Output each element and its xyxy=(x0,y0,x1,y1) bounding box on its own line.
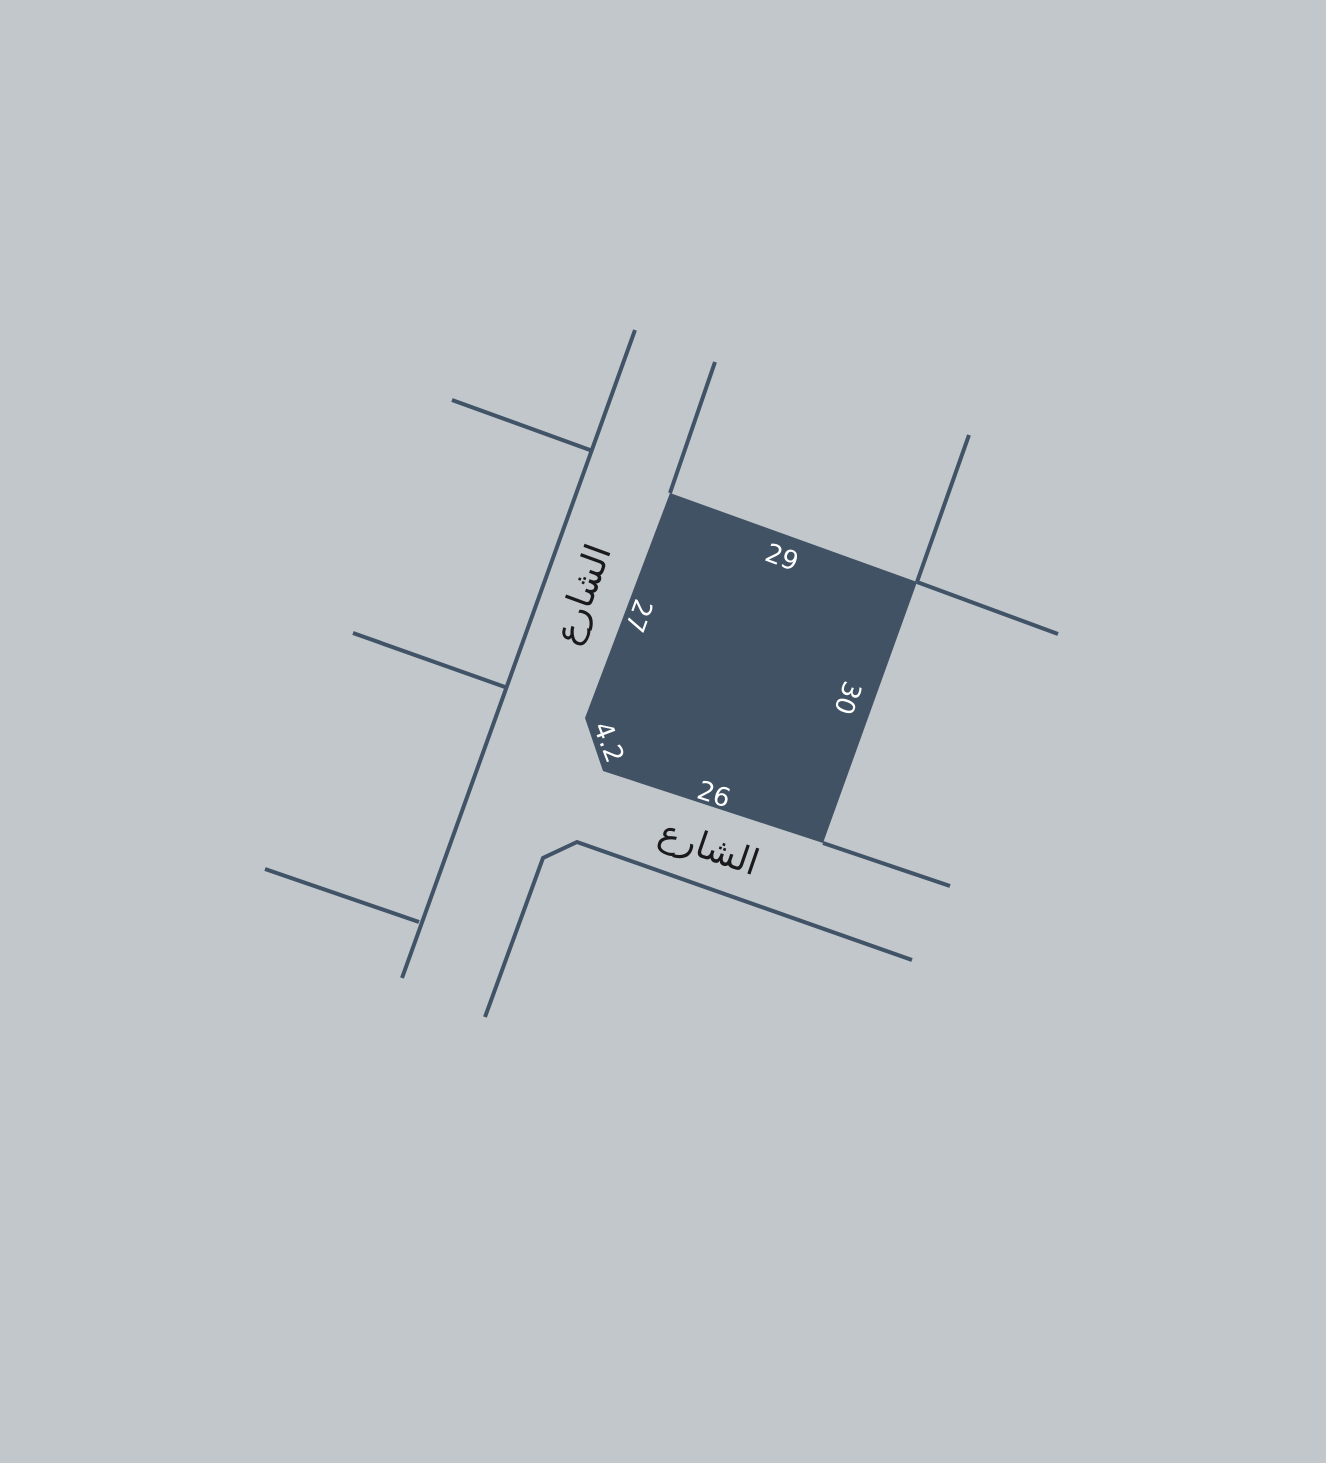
parcel-map-canvas: 292730264.2الشارعالشارع xyxy=(0,0,1326,1463)
